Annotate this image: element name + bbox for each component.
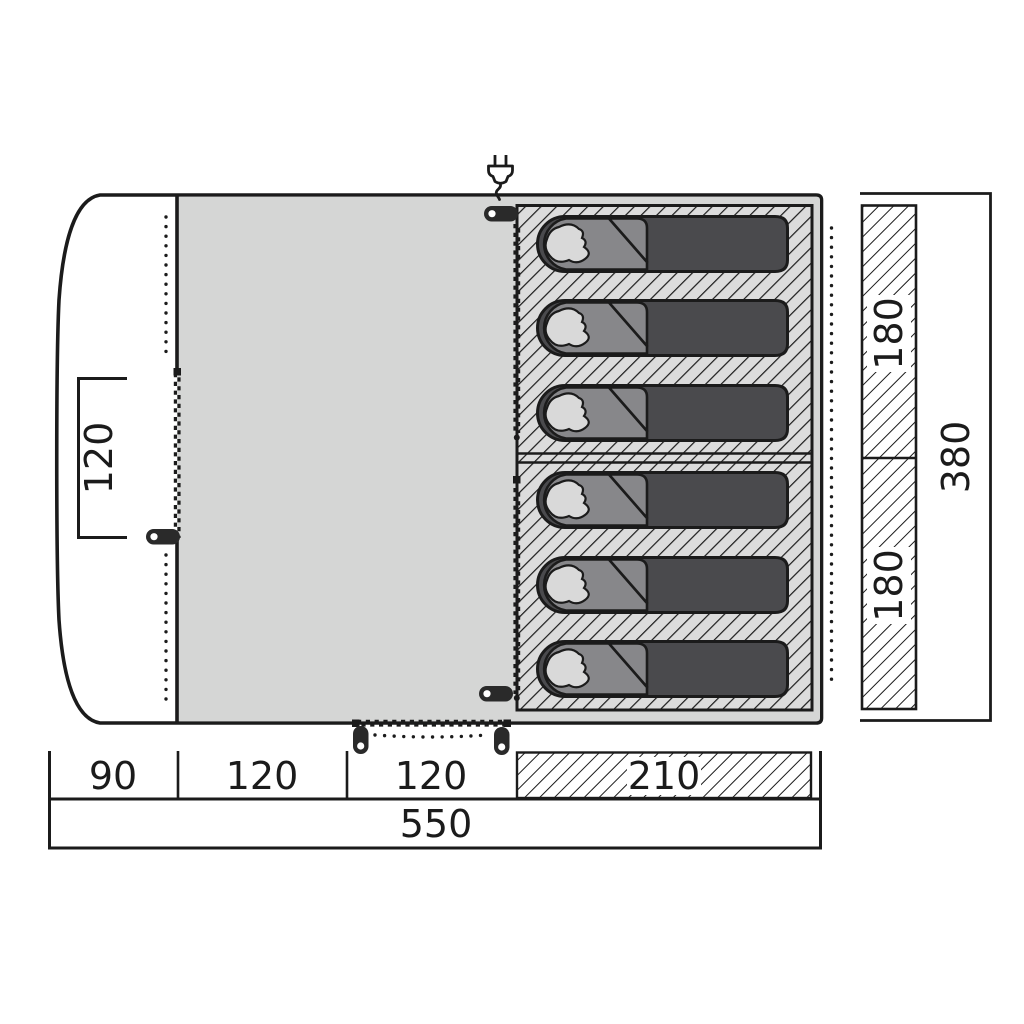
sleeping-bag [538, 301, 788, 356]
inner-depth-label-2: 180 [867, 549, 911, 622]
zipper-pull-icon [479, 686, 513, 702]
side-door-width-label: 120 [77, 422, 121, 495]
zipper-pull-icon [484, 206, 518, 222]
power-plug-icon [489, 155, 513, 200]
sleeping-bag [538, 386, 788, 441]
sleeping-bag [538, 473, 788, 528]
total-width-label: 550 [400, 802, 473, 846]
sleeping-bag [538, 217, 788, 272]
tent-floorplan-canvas: 120 180 180 [0, 0, 1024, 1024]
sleeping-compartment [517, 206, 812, 711]
zipper-pull-icon [353, 726, 369, 754]
tent-floorplan: 120 180 180 [0, 0, 1024, 1024]
segment-label-120a: 120 [226, 754, 299, 798]
sleeping-bag [538, 558, 788, 613]
total-depth-label: 380 [934, 421, 978, 494]
segment-label-120b: 120 [395, 754, 468, 798]
inner-depth-label-1: 180 [867, 297, 911, 370]
zipper-pull-icon [146, 529, 180, 545]
bottom-dimension-bars: 90 120 120 210 550 [50, 751, 821, 848]
segment-label-210: 210 [628, 754, 701, 798]
right-dimension-bar: 180 180 [862, 206, 916, 710]
zipper-pull-icon [494, 727, 510, 755]
sleeping-bag [538, 642, 788, 697]
segment-label-90: 90 [89, 754, 137, 798]
